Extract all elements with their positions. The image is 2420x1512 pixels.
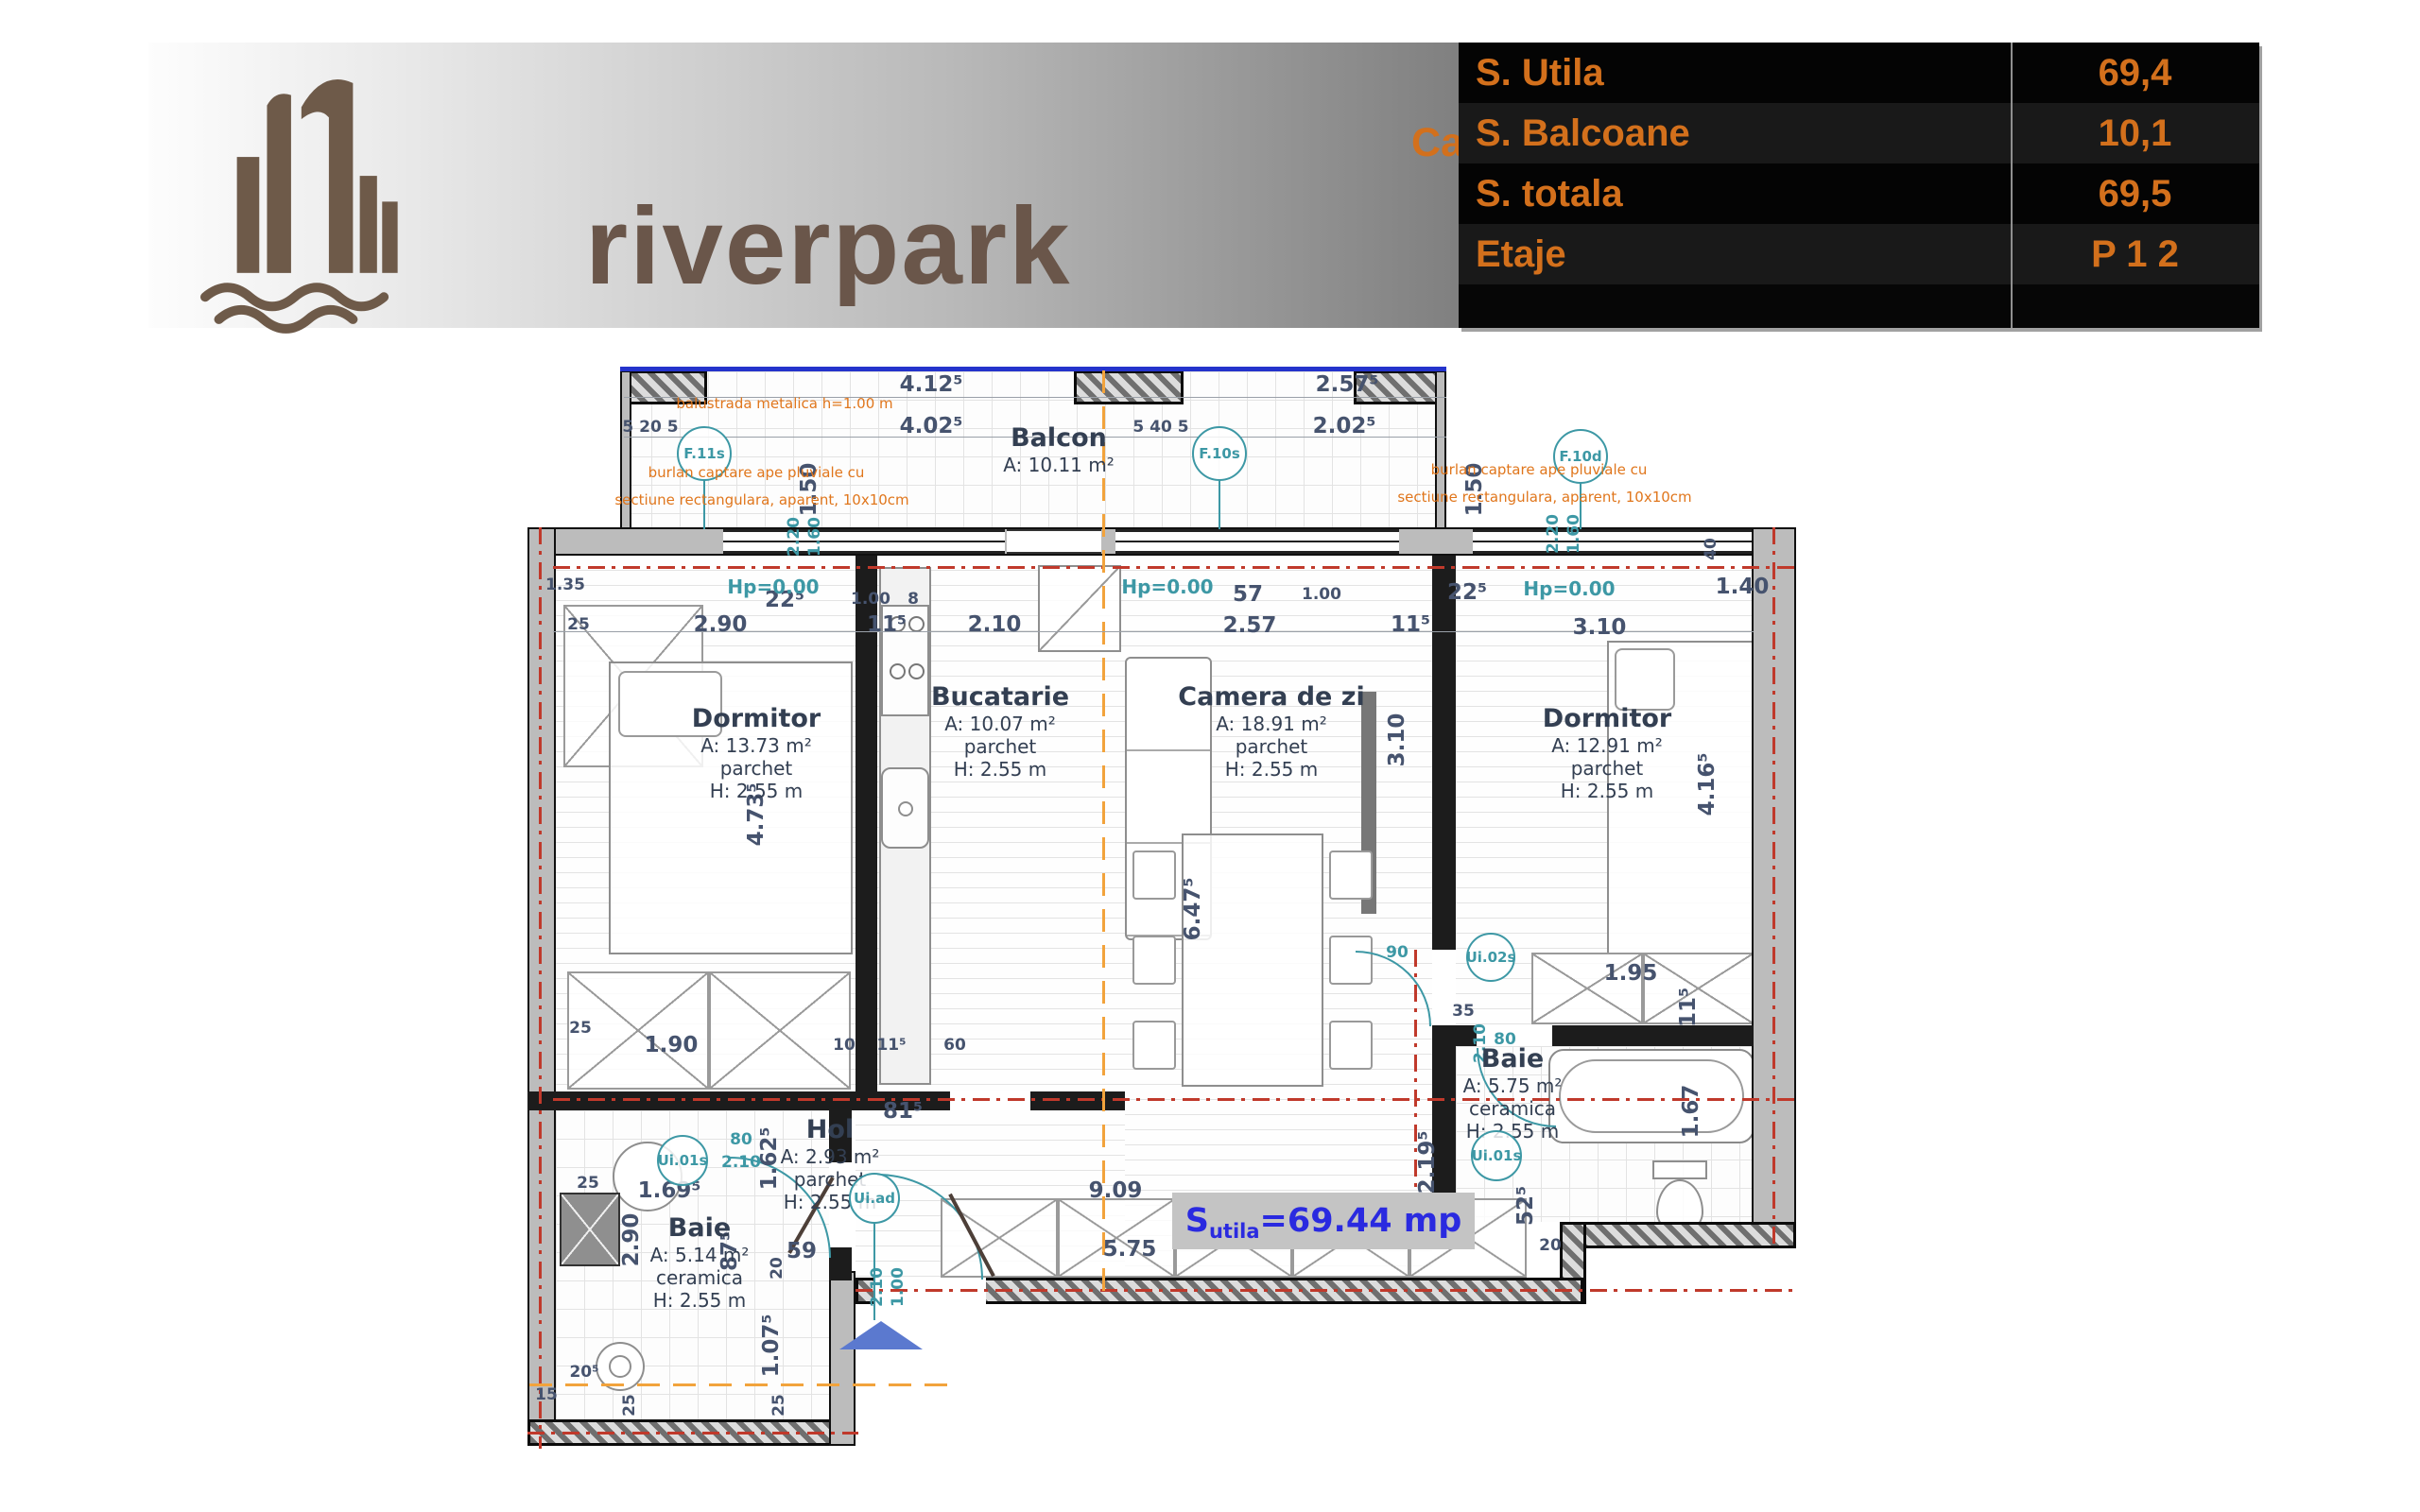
dimension-label: 2.20	[785, 517, 804, 557]
interior-wall	[1552, 1025, 1754, 1046]
sutila-value: =69.44 mp	[1260, 1202, 1462, 1240]
dimension-label: 1.00	[889, 1267, 907, 1307]
axis-line	[527, 1432, 858, 1435]
room-finish: ceramica	[1463, 1097, 1563, 1120]
summary-row: S. Balcoane 10,1	[1459, 103, 2259, 163]
dimension-label: 1.90	[645, 1033, 699, 1057]
room-label: Dormitor A: 12.91 m² parchet H: 2.55 m	[1543, 704, 1671, 802]
opening-tag: Ui.ad	[849, 1173, 900, 1224]
room-name: Camera de zi	[1178, 682, 1364, 713]
dimension-label: 5 20 5	[622, 418, 678, 437]
kitchen-sink	[881, 767, 929, 849]
dimension-label: 4.12⁵	[900, 372, 963, 397]
room-label: Camera de zi A: 18.91 m² parchet H: 2.55…	[1178, 682, 1364, 781]
window	[723, 529, 1005, 554]
dimension-label: 25	[769, 1394, 788, 1417]
floor-plan-page: riverpark Camere: 3 Tip: B S. Utila 69,4…	[0, 0, 2420, 1512]
dimension-label: 4.02⁵	[900, 414, 963, 438]
summary-row: Etaje P 1 2	[1459, 224, 2259, 284]
summary-label: Etaje	[1459, 233, 2011, 276]
exterior-wall-bottom-right	[1560, 1222, 1796, 1248]
sutila-sub: utila	[1209, 1220, 1260, 1249]
chair	[1132, 936, 1176, 985]
dimension-label: 20	[1539, 1236, 1562, 1255]
parapet-height-label: Hp=0.00	[1121, 576, 1213, 598]
room-area: A: 5.75 m²	[1463, 1074, 1563, 1097]
module-line	[529, 1383, 955, 1386]
dimension-label: 15	[535, 1385, 558, 1404]
dimension-label: 35	[1452, 1002, 1475, 1021]
balcony-parapet	[1435, 370, 1446, 531]
riverpark-logo-icon	[177, 54, 460, 337]
dimension-label: 1.07⁵	[759, 1314, 784, 1378]
dimension-label: 2.90	[619, 1213, 644, 1267]
dimension-label: 3.10	[1385, 713, 1409, 767]
room-area: A: 2.93 m²	[781, 1145, 880, 1168]
dimension-label: 25	[577, 1174, 599, 1193]
bathtub	[1548, 1049, 1754, 1143]
dimension-label: 5.75	[1103, 1237, 1157, 1262]
dimension-label: 5 40 5	[1132, 418, 1188, 437]
dimension-label: 11⁵	[876, 1036, 906, 1055]
room-finish: parchet	[1178, 735, 1364, 758]
dimension-label: 60	[943, 1036, 966, 1055]
dimension-label: 2.90	[694, 612, 748, 637]
plumbing-note: burlan captare ape pluviale cu	[1431, 461, 1648, 478]
room-label: Balcon A: 10.11 m²	[1003, 423, 1115, 476]
dimension-label: 81⁵	[883, 1099, 923, 1124]
dimension-label: 1.00	[1302, 585, 1341, 604]
room-height: H: 2.55 m	[931, 758, 1069, 781]
chair	[1329, 850, 1373, 900]
dimension-label: 1.60	[805, 517, 824, 557]
dimension-label: 57	[1233, 582, 1263, 607]
dimension-label: 9.09	[1089, 1178, 1143, 1203]
room-label: Dormitor A: 13.73 m² parchet H: 2.55 m	[692, 704, 821, 802]
room-area: A: 5.14 m²	[650, 1244, 750, 1266]
dimension-label: 8	[907, 590, 919, 609]
fridge	[1038, 565, 1121, 652]
room-label: Bucatarie A: 10.07 m² parchet H: 2.55 m	[931, 682, 1069, 781]
area-summary-table: S. Utila 69,4 S. Balcoane 10,1 S. totala…	[1459, 43, 2259, 328]
dimension-label: 90	[1386, 943, 1409, 962]
brand-name: riverpark	[585, 182, 1072, 309]
dimension-label: 20	[768, 1257, 786, 1280]
room-name: Dormitor	[1543, 704, 1671, 734]
dimension-label: 1.60	[1564, 514, 1583, 554]
dining-table	[1182, 833, 1323, 1087]
dimension-label: 22⁵	[1447, 580, 1487, 605]
dimension-label: 2.10	[868, 1267, 887, 1307]
axis-line	[553, 1098, 1796, 1101]
room-area: A: 10.07 m²	[931, 713, 1069, 735]
module-line	[1102, 370, 1105, 1304]
plumbing-note: sectiune rectangulara, aparent, 10x10cm	[614, 491, 908, 508]
summary-label: S. Utila	[1459, 52, 2011, 94]
axis-line	[856, 1289, 1796, 1292]
interior-wall	[1030, 1091, 1125, 1110]
room-finish: parchet	[692, 757, 821, 780]
sutila-prefix: S	[1185, 1202, 1209, 1240]
dimension-label: 20⁵	[569, 1363, 598, 1382]
axis-line	[1772, 527, 1775, 1250]
room-finish: parchet	[1543, 757, 1671, 780]
chair	[1132, 1021, 1176, 1070]
room-name: Baie	[650, 1213, 750, 1244]
opening-tag: Ui.01s	[657, 1135, 708, 1186]
room-label: Baie A: 5.75 m² ceramica H: 2.55 m	[1463, 1044, 1563, 1143]
dimension-label: 11⁵	[867, 612, 907, 637]
window	[1115, 529, 1399, 554]
room-height: H: 2.55 m	[1178, 758, 1364, 781]
summary-value: P 1 2	[2011, 233, 2259, 276]
chair	[1132, 850, 1176, 900]
balcony-pillar	[1074, 370, 1184, 404]
table-divider	[2011, 43, 2013, 328]
parapet-height-label: Hp=0.00	[1523, 577, 1615, 600]
dimension-label: 11⁵	[1676, 988, 1701, 1027]
room-name: Baie	[1463, 1044, 1563, 1074]
interior-wall	[527, 1091, 856, 1110]
dimension-label: 25	[567, 615, 590, 634]
dimension-label: 2.10	[968, 612, 1022, 637]
wardrobe	[709, 971, 851, 1090]
room-name: Balcon	[1003, 423, 1115, 454]
pillow	[1615, 648, 1675, 711]
wall	[829, 1271, 856, 1446]
opening-tag: F.10s	[1192, 426, 1247, 481]
interior-wall	[1432, 556, 1456, 950]
plumbing-note: burlan captare ape pluviale cu	[648, 464, 865, 481]
room-name: Bucatarie	[931, 682, 1069, 713]
toilet-tank	[1652, 1160, 1707, 1179]
room-area: A: 18.91 m²	[1178, 713, 1364, 735]
room-height: H: 2.55 m	[692, 780, 821, 802]
dimension-label: 1.35	[545, 576, 585, 594]
summary-row: S. totala 69,5	[1459, 163, 2259, 224]
summary-value: 69,4	[2011, 52, 2259, 94]
dimension-label: 2.20	[1544, 514, 1563, 554]
room-area: A: 13.73 m²	[692, 734, 821, 757]
summary-row: S. Utila 69,4	[1459, 43, 2259, 103]
room-label: Baie A: 5.14 m² ceramica H: 2.55 m	[650, 1213, 750, 1312]
room-area: A: 10.11 m²	[1003, 454, 1115, 476]
balcony-door	[1007, 529, 1101, 554]
dimension-label: 1.00	[851, 590, 890, 609]
dimension-label: 3.10	[1573, 615, 1627, 640]
dimension-label: 11⁵	[1391, 612, 1430, 637]
plumbing-note: balustrada metalica h=1.00 m	[676, 395, 892, 412]
dimension-label: 2.57	[1223, 613, 1277, 638]
summary-label: S. Balcoane	[1459, 112, 2011, 155]
dimension-label: 25	[569, 1019, 592, 1038]
room-area: A: 12.91 m²	[1543, 734, 1671, 757]
dimension-label: 52⁵	[1513, 1186, 1538, 1226]
axis-line	[553, 566, 1796, 569]
balcony-railing	[620, 367, 1446, 371]
dimension-label: 2.19⁵	[1415, 1131, 1440, 1194]
room-height: H: 2.55 m	[650, 1289, 750, 1312]
leader-line	[1219, 479, 1220, 529]
shower-box	[560, 1193, 620, 1266]
chair	[1329, 1021, 1373, 1070]
usable-area-chip: Sutila=69.44 mp	[1172, 1193, 1475, 1249]
dimension-label: 10	[833, 1036, 856, 1055]
dimension-label: 6.47⁵	[1181, 878, 1205, 941]
room-name: Hol	[781, 1115, 880, 1145]
entrance-arrow-icon	[839, 1321, 923, 1349]
dimension-label: 1.95	[1604, 961, 1658, 986]
axis-line	[539, 527, 542, 1449]
dimension-label: 40	[1702, 538, 1720, 560]
room-height: H: 2.55 m	[1543, 780, 1671, 802]
opening-tag: Ui.02s	[1466, 933, 1515, 982]
dimension-label: 2.10	[721, 1153, 761, 1172]
room-finish: parchet	[931, 735, 1069, 758]
dimension-label: 80	[730, 1130, 752, 1149]
summary-label: S. totala	[1459, 173, 2011, 215]
exterior-wall-left	[527, 527, 556, 1446]
opening-tag: Ui.01s	[1471, 1130, 1522, 1181]
summary-value: 10,1	[2011, 112, 2259, 155]
plumbing-note: sectiune rectangulara, aparent, 10x10cm	[1397, 489, 1691, 506]
summary-value: 69,5	[2011, 173, 2259, 215]
room-name: Dormitor	[692, 704, 821, 734]
dimension-label: 2.02⁵	[1313, 414, 1376, 438]
dimension-label: 25	[620, 1394, 639, 1417]
room-finish: ceramica	[650, 1266, 750, 1289]
dimension-label: 1.67	[1679, 1085, 1703, 1139]
interior-wall	[829, 1247, 852, 1280]
parapet-height-label: Hp=0.00	[727, 576, 819, 598]
dimension-label: 4.16⁵	[1695, 753, 1720, 816]
dimension-label: 2.57⁵	[1316, 372, 1379, 397]
summary-empty-row	[1459, 284, 2259, 328]
dimension-label: 59	[786, 1239, 817, 1263]
dimension-label: 1.40	[1716, 575, 1770, 599]
